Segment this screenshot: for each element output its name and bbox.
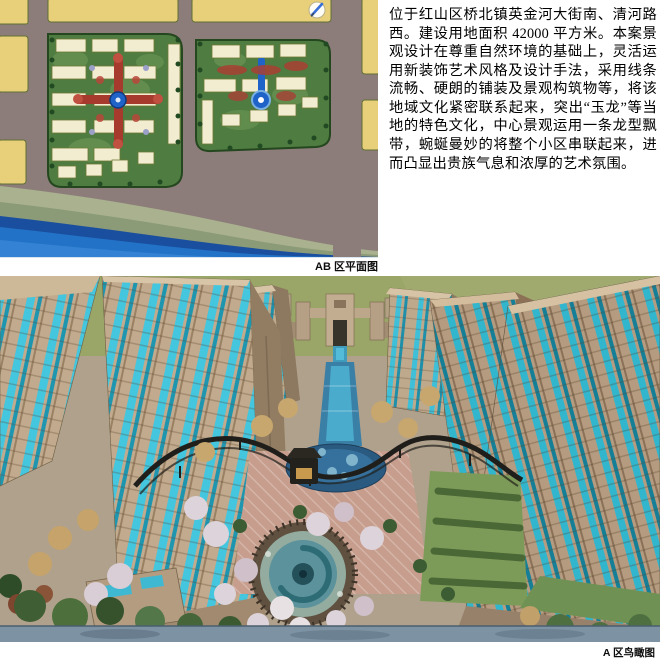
- site-plan-figure: [0, 0, 378, 258]
- site-plan-caption: AB 区平面图: [178, 258, 378, 274]
- vertical-road: [333, 0, 361, 257]
- pavilion: [286, 448, 322, 484]
- aerial-view-caption: A 区鸟瞰图: [455, 645, 655, 660]
- fountain-plaza: [251, 522, 355, 626]
- site-plan-image: [0, 0, 378, 257]
- bottom-road: [0, 626, 660, 642]
- project-description: 位于红山区桥北镇英金河大街南、清河路西。建设用地面积 42000 平方米。本案景…: [389, 6, 657, 173]
- aerial-view-image: [0, 276, 660, 642]
- pencil-icon: [309, 2, 325, 18]
- document-page: AB 区平面图 位于红山区桥北镇英金河大街南、清河路西。建设用地面积 42000…: [0, 0, 660, 661]
- aerial-view-figure: [0, 276, 660, 642]
